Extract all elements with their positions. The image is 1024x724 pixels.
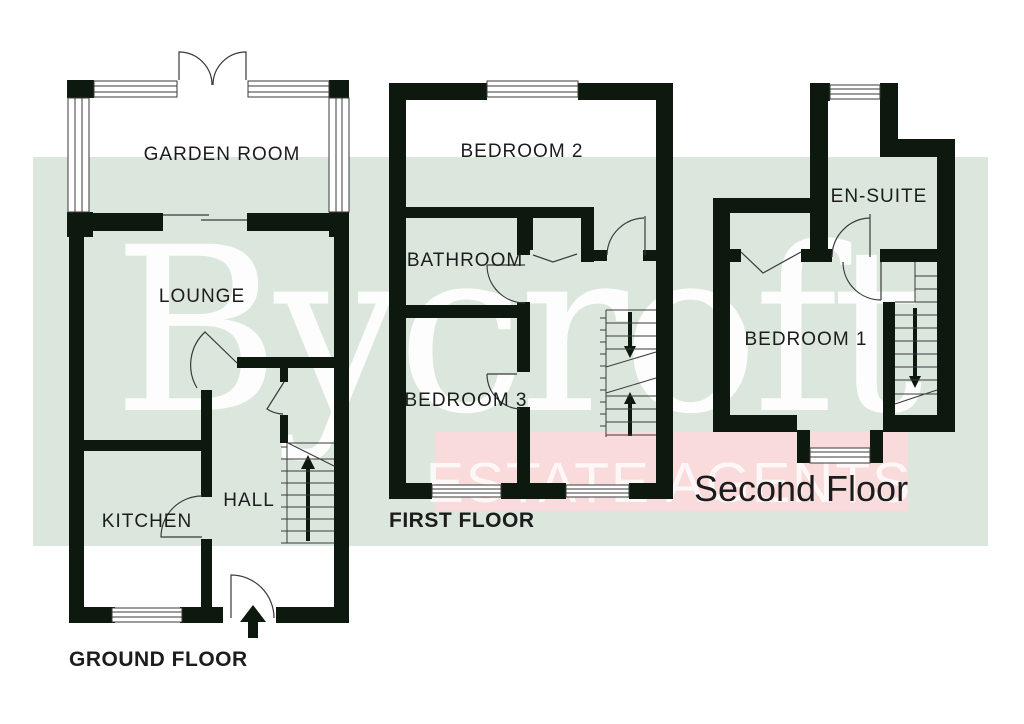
room-label-ensuite: EN-SUITE <box>831 186 928 207</box>
garden-room-french-doors <box>179 52 246 85</box>
room-label-bedroom2: BEDROOM 2 <box>460 141 583 162</box>
entrance-arrow <box>240 605 266 622</box>
dormer-window <box>810 448 870 463</box>
floorplan-canvas: Bycroft ESTATE AGENTS <box>0 0 1024 724</box>
floor-title-first: FIRST FLOOR <box>389 509 535 532</box>
room-label-bedroom1: BEDROOM 1 <box>744 329 867 350</box>
room-label-bathroom: BATHROOM <box>407 250 523 271</box>
room-label-lounge: LOUNGE <box>159 286 245 307</box>
floorplan-page: Bycroft ESTATE AGENTS <box>0 0 1024 724</box>
kitchen-window <box>112 608 182 622</box>
room-label-garden-room: GARDEN ROOM <box>144 144 301 165</box>
room-label-hall: HALL <box>223 490 275 511</box>
floor-title-second: Second Floor <box>694 468 908 509</box>
floor-title-ground: GROUND FLOOR <box>69 648 248 671</box>
room-label-kitchen: KITCHEN <box>102 511 192 532</box>
room-label-bedroom3: BEDROOM 3 <box>404 390 527 411</box>
